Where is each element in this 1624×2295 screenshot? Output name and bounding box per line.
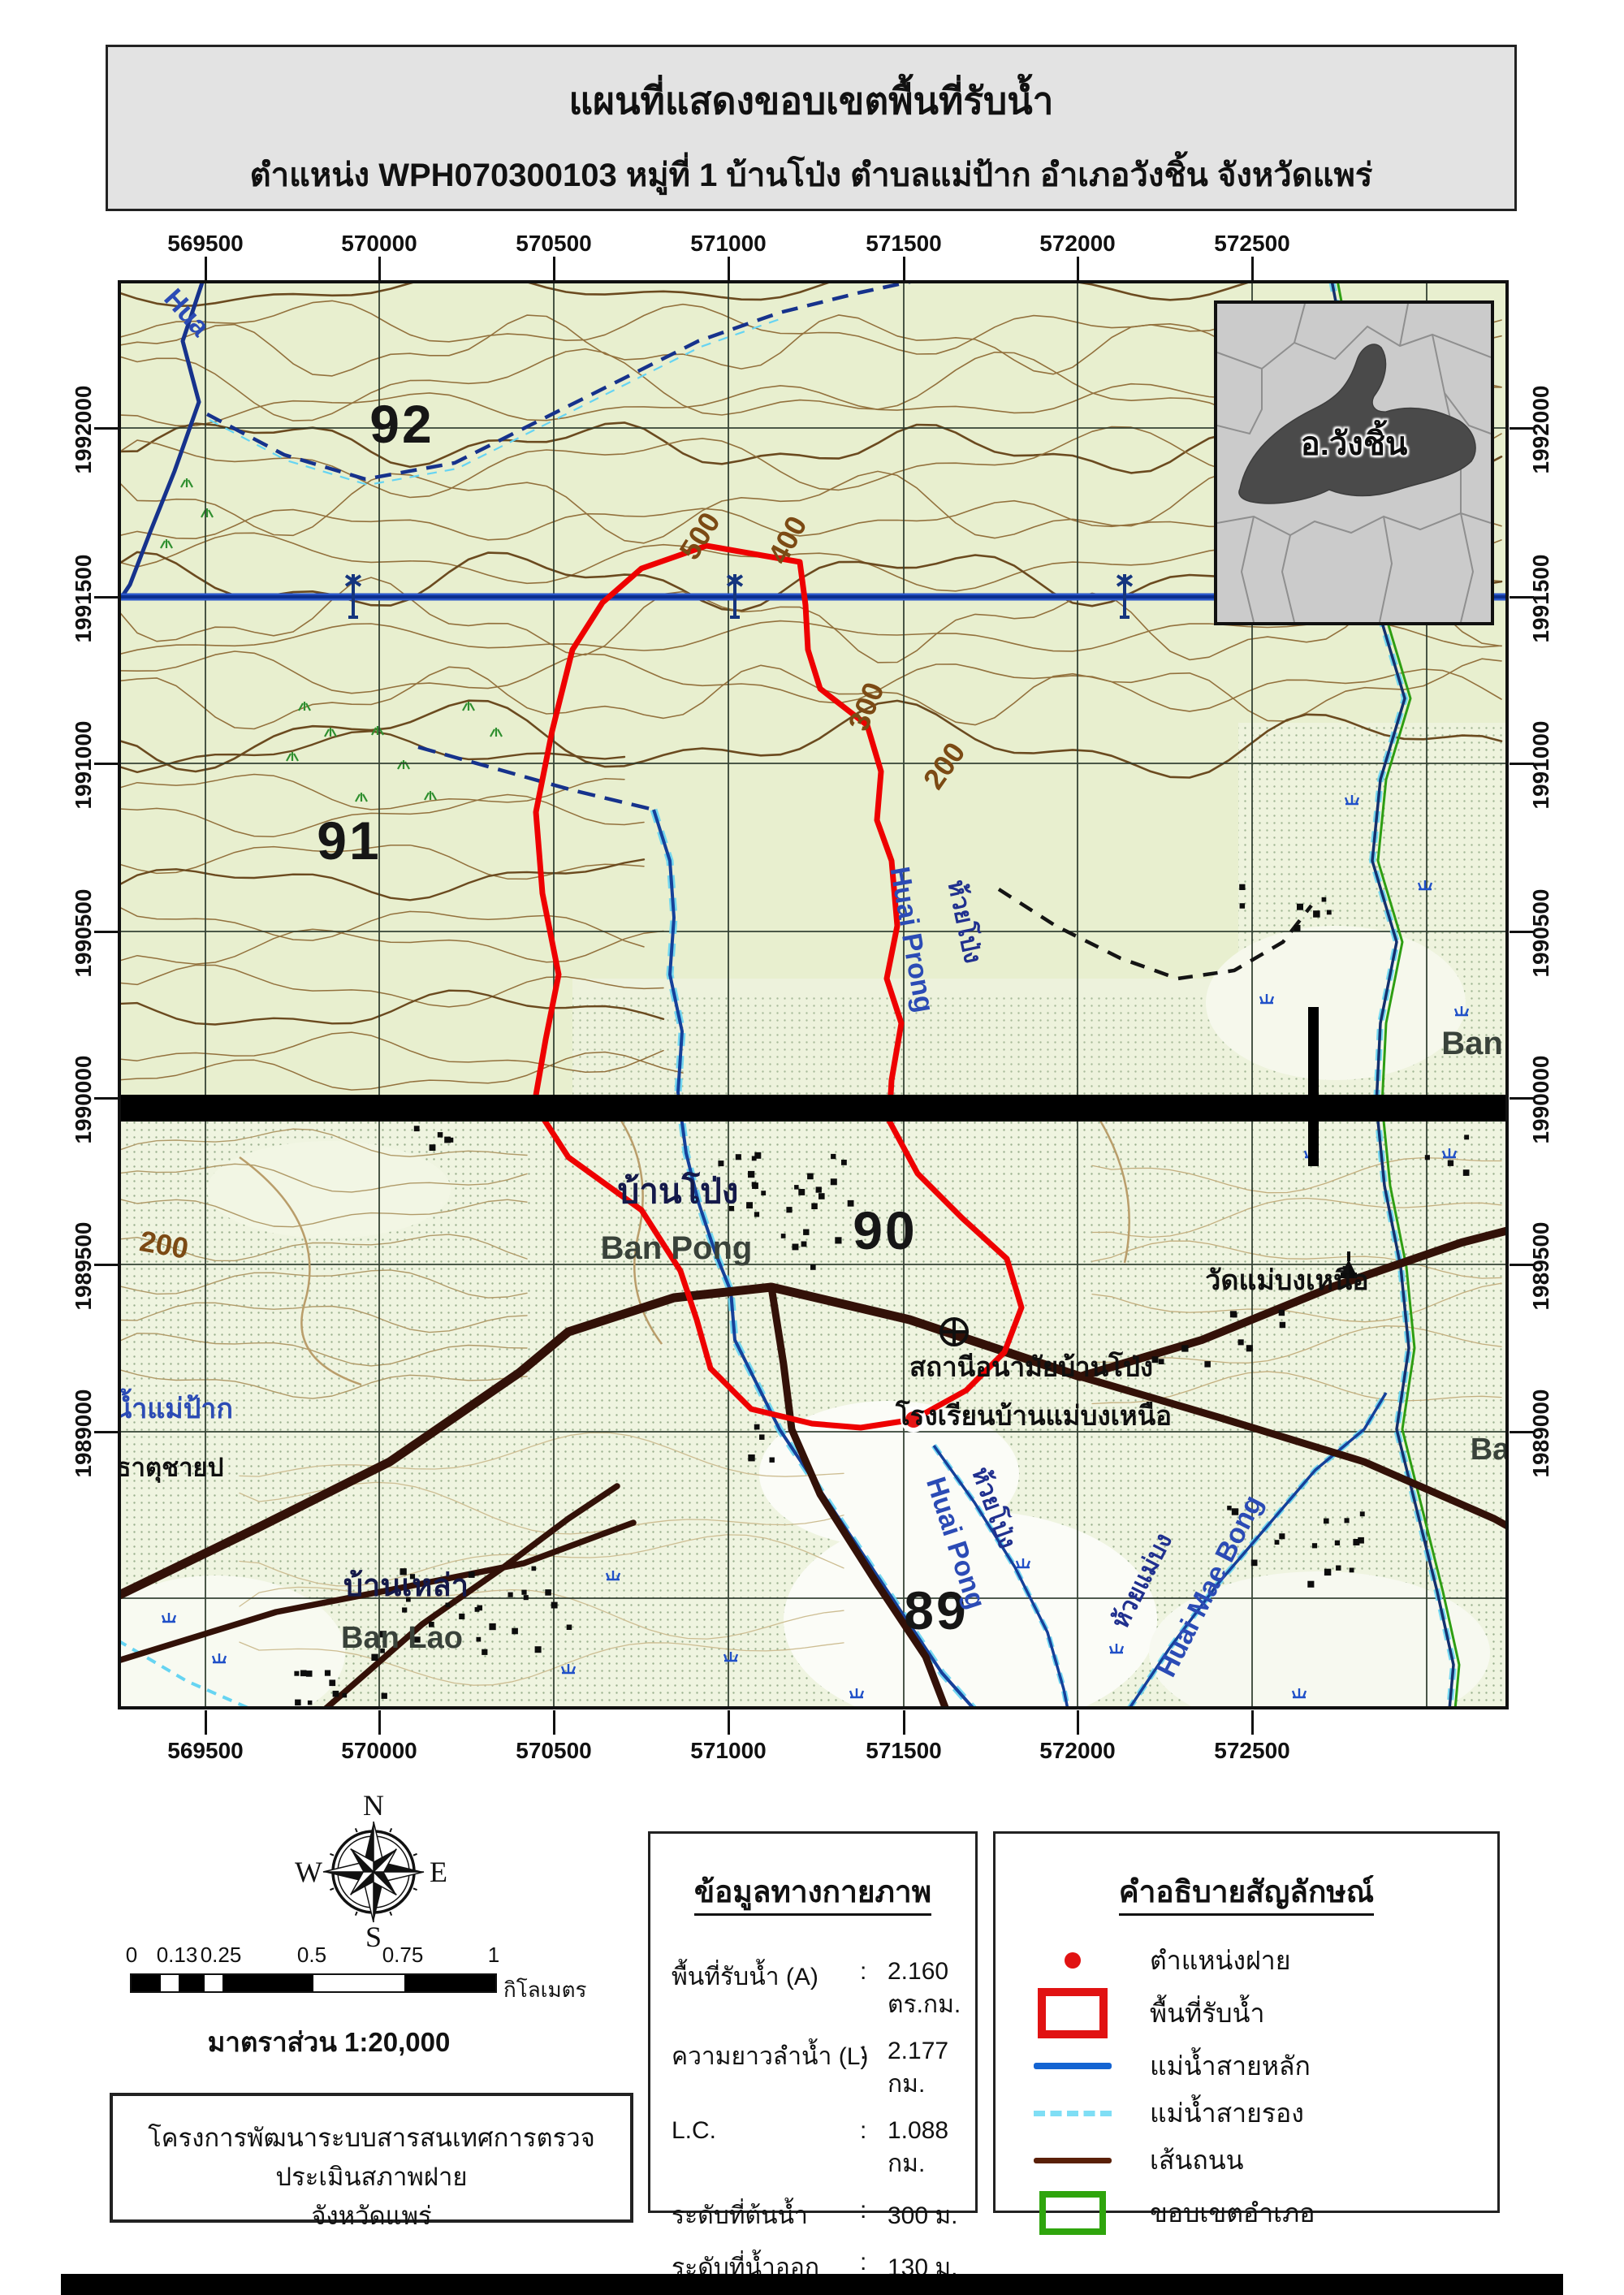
y-label-right: 1990000 [1528, 1035, 1554, 1165]
map-subtitle: ตำแหน่ง WPH070300103 หมู่ที่ 1 บ้านโป่ง … [108, 149, 1514, 201]
secondary-river-icon [1034, 2111, 1112, 2116]
y-label-left: 1990500 [71, 868, 97, 998]
district-name: อ.วังชิ้น [1301, 417, 1408, 469]
x-label-bottom: 572500 [1187, 1738, 1317, 1764]
x-label-top: 572000 [1013, 231, 1142, 257]
compass-n: N [363, 1791, 384, 1822]
legend-items: ตำแหน่งฝาย พื้นที่รับน้ำ แม่น้ำสายหลัก แ… [996, 1937, 1497, 2242]
compass-w: W [295, 1856, 322, 1888]
x-label-bottom: 572000 [1013, 1738, 1142, 1764]
physical-data-box: ข้อมูลทางกายภาพ พื้นที่รับน้ำ (A):2.160 … [648, 1831, 978, 2213]
page: แผนที่แสดงขอบเขตพื้นที่รับน้ำ ตำแหน่ง WP… [0, 0, 1624, 2295]
poi-label: วัดแม่บงเหนือ [1205, 1267, 1368, 1294]
x-label-top: 570000 [314, 231, 444, 257]
x-label-top: 571000 [663, 231, 793, 257]
y-label-left: 1989500 [71, 1201, 97, 1331]
village-label-en: Ban Pong [601, 1232, 753, 1264]
x-label-top: 570500 [489, 231, 619, 257]
title-box: แผนที่แสดงขอบเขตพื้นที่รับน้ำ ตำแหน่ง WP… [106, 45, 1517, 211]
y-label-right: 1989000 [1528, 1368, 1554, 1498]
y-label-right: 1989500 [1528, 1201, 1554, 1331]
y-label-right: 1991500 [1528, 534, 1554, 663]
poi-label: โรงเรียนบ้านแม่บงเหนือ [896, 1402, 1172, 1429]
main-river-icon [1034, 2063, 1112, 2069]
legend-box: คำอธิบายสัญลักษณ์ ตำแหน่งฝาย พื้นที่รับน… [993, 1831, 1500, 2213]
x-label-bottom: 571000 [663, 1738, 793, 1764]
x-label-bottom: 570000 [314, 1738, 444, 1764]
scale-bar [130, 1973, 497, 1993]
x-label-top: 571500 [839, 231, 969, 257]
district-boundary-icon [1039, 2191, 1106, 2235]
poi-label: ธาตุชายป [118, 1455, 223, 1480]
y-label-right: 1992000 [1528, 365, 1554, 495]
scale-tick: 0.75 [370, 1943, 435, 1968]
district-inset-map: อ.วังชิ้น [1214, 300, 1494, 625]
x-label-bottom: 569500 [140, 1738, 270, 1764]
footer-bar [61, 2274, 1563, 2295]
y-label-right: 1991000 [1528, 700, 1554, 830]
y-label-left: 1989000 [71, 1368, 97, 1498]
contour-label: 200 [137, 1226, 190, 1264]
info-rows: พื้นที่รับน้ำ (A):2.160 ตร.กม. ความยาวลำ… [672, 1958, 975, 2295]
y-label-left: 1992000 [71, 365, 97, 495]
scale-unit: กิโลเมตร [503, 1973, 587, 2007]
legend-title: คำอธิบายสัญลักษณ์ [996, 1868, 1497, 1916]
village-label-th: บ้านโป่ง [618, 1174, 739, 1208]
x-label-top: 572500 [1187, 231, 1317, 257]
scale-tick: 0.25 [188, 1943, 253, 1968]
project-line1: โครงการพัฒนาระบบสารสนเทศการตรวจประเมินสภ… [113, 2119, 630, 2197]
x-label-bottom: 571500 [839, 1738, 969, 1764]
watershed-area-icon [1038, 1988, 1108, 2038]
scale-tick: 0.5 [279, 1943, 344, 1968]
project-box: โครงการพัฒนาระบบสารสนเทศการตรวจประเมินสภ… [110, 2093, 633, 2223]
black-bar [118, 1095, 1509, 1122]
y-label-left: 1990000 [71, 1035, 97, 1165]
y-label-right: 1990500 [1528, 868, 1554, 998]
road-line-icon [1034, 2158, 1112, 2163]
x-label-top: 569500 [140, 231, 270, 257]
grid-number: 92 [369, 397, 434, 451]
school-symbol [941, 1319, 967, 1345]
project-line2: จังหวัดแพร่ [113, 2197, 630, 2236]
village-label-en: Ba [1471, 1434, 1509, 1465]
y-label-left: 1991000 [71, 700, 97, 830]
topographic-map: 92 91 90 89 500 400 300 200 200 Hua บ้าน… [118, 280, 1509, 1709]
x-label-bottom: 570500 [489, 1738, 619, 1764]
scale-tick: 1 [461, 1943, 526, 1968]
village-label-th: บ้านเหล่า [343, 1571, 469, 1601]
y-label-left: 1991500 [71, 534, 97, 663]
weir-dot-icon [1065, 1952, 1081, 1969]
info-title: ข้อมูลทางกายภาพ [650, 1868, 975, 1916]
stream-label: น้ำแม่ป้าก [118, 1395, 233, 1423]
scale-ratio: มาตราส่วน 1:20,000 [150, 2021, 508, 2064]
village-label-en: Ban Lao [341, 1623, 463, 1653]
compass-rose: N E S W [292, 1791, 455, 1953]
poi-label: สถานีอนามัยบ้านโป่ง [909, 1354, 1153, 1381]
village-label-en: Ban [1441, 1027, 1503, 1060]
grid-number: 90 [853, 1204, 917, 1257]
grid-number: 91 [317, 814, 381, 867]
map-title: แผนที่แสดงขอบเขตพื้นที่รับน้ำ [108, 71, 1514, 131]
compass-e: E [430, 1856, 447, 1888]
